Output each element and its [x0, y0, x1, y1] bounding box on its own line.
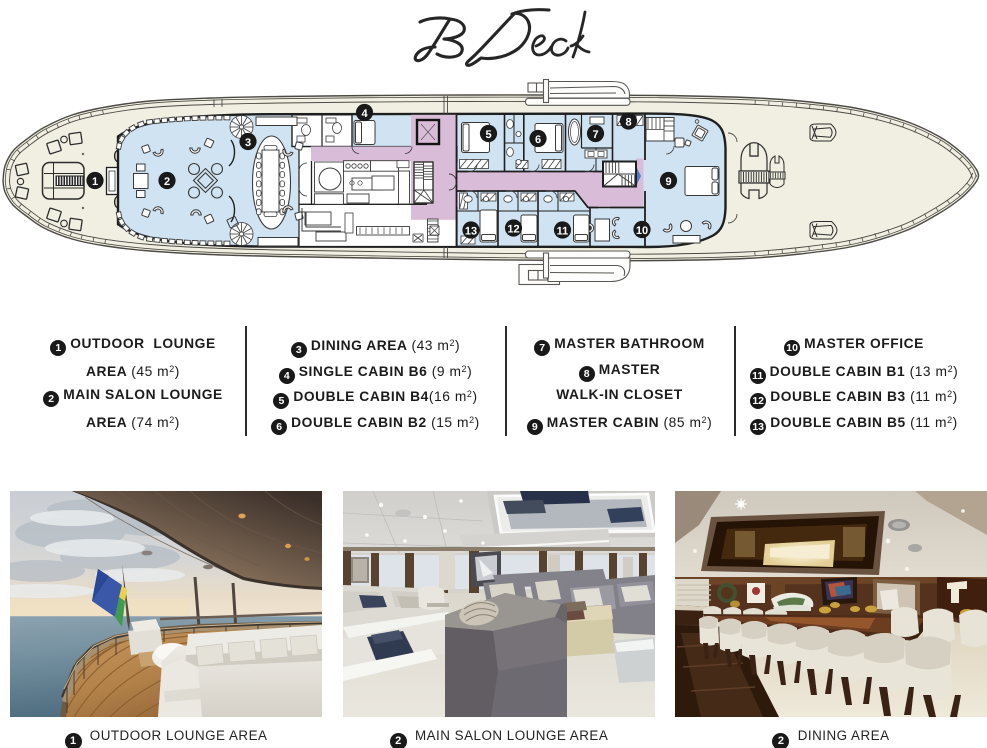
- svg-text:12: 12: [507, 223, 519, 235]
- svg-text:8: 8: [625, 116, 631, 128]
- svg-text:4: 4: [361, 108, 368, 120]
- svg-text:5: 5: [485, 129, 491, 141]
- svg-text:13: 13: [465, 225, 477, 237]
- svg-text:9: 9: [665, 176, 671, 188]
- svg-text:3: 3: [245, 137, 251, 149]
- svg-text:6: 6: [535, 134, 541, 146]
- svg-text:1: 1: [92, 176, 98, 188]
- svg-text:7: 7: [592, 129, 598, 141]
- svg-text:2: 2: [164, 176, 170, 188]
- svg-text:10: 10: [636, 225, 648, 237]
- svg-text:11: 11: [557, 225, 569, 237]
